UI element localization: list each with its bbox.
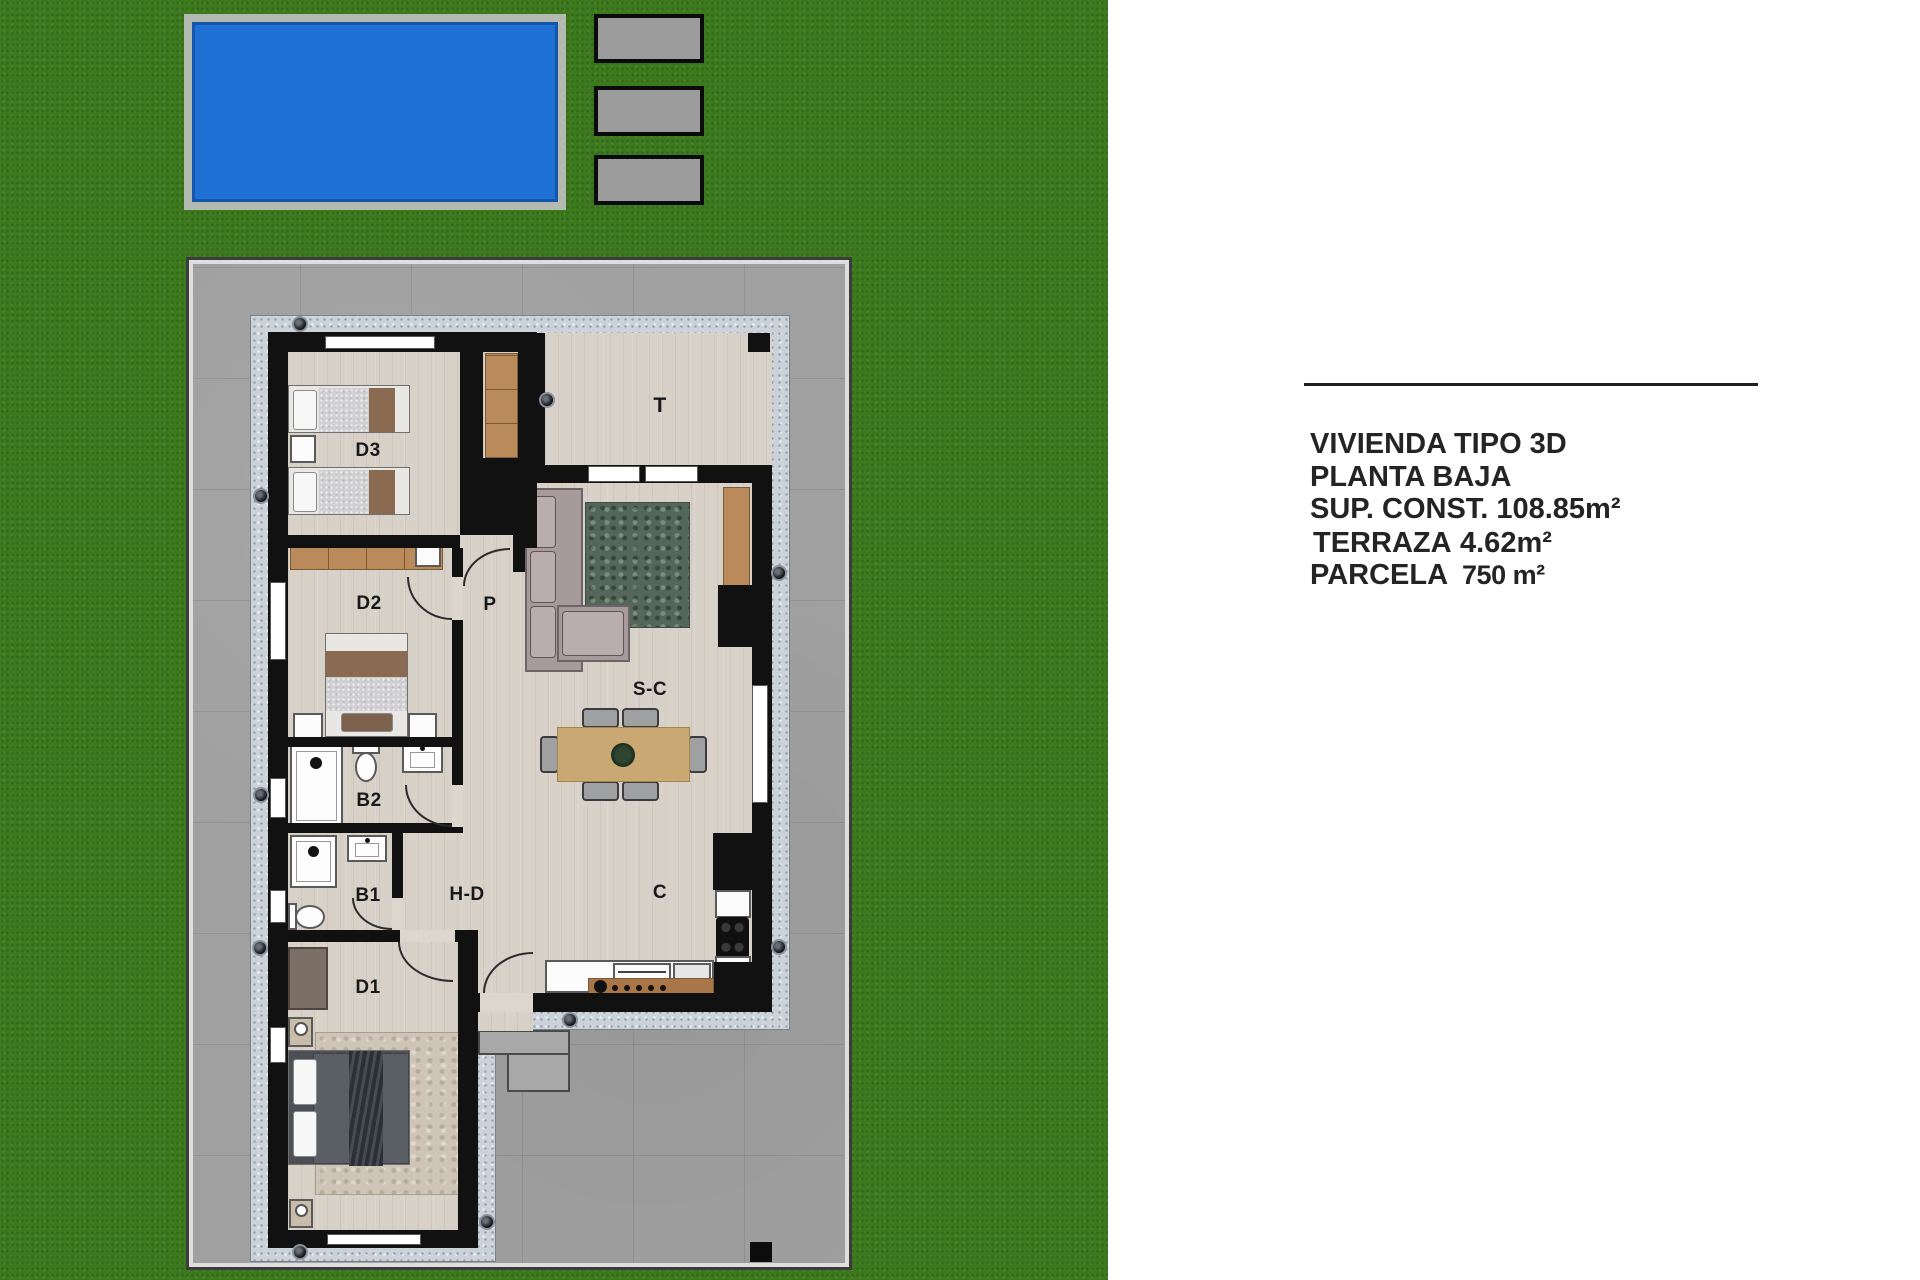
- pillow: [293, 1111, 317, 1157]
- exterior-light: [292, 316, 308, 332]
- room-label-b2: B2: [356, 790, 381, 812]
- wall-d3-right: [460, 352, 483, 535]
- kitchen-tall-cabinet: [713, 833, 752, 890]
- entry-step-1: [478, 1030, 570, 1055]
- panel-spec-sup-const: SUP. CONST.108.85m²: [1310, 493, 1621, 526]
- pillow: [293, 1059, 317, 1105]
- entry-step-2: [507, 1053, 570, 1092]
- faucet: [365, 838, 370, 843]
- bar-item: [660, 985, 666, 991]
- wall-d3-bottom: [288, 535, 460, 548]
- table-plant: [611, 743, 635, 767]
- dining-chair: [688, 736, 707, 773]
- bed-blanket: [326, 651, 407, 677]
- nightstand: [293, 713, 323, 740]
- floor-plan-canvas: D3 D2 P T S-C B2 B1 H-D C D1 VIVIENDA TI…: [0, 0, 1920, 1280]
- door-gap-d2: [452, 577, 463, 620]
- bed-blanket: [369, 470, 395, 514]
- shower-drain: [310, 757, 322, 769]
- window-d1-bottom: [327, 1234, 421, 1245]
- bar-item: [648, 985, 654, 991]
- spec-value: 4.62m²: [1460, 527, 1552, 559]
- dining-chair: [622, 708, 659, 728]
- exterior-light: [292, 1244, 308, 1260]
- panel-spec-terraza: TERRAZA4.62m²: [1313, 527, 1552, 560]
- room-label-d1: D1: [355, 977, 380, 999]
- bed-double-d2: [325, 633, 408, 737]
- shower-drain: [308, 846, 319, 857]
- lamp: [294, 1022, 308, 1036]
- wardrobe-d1: [288, 947, 328, 1010]
- panel-subtitle: PLANTA BAJA: [1310, 461, 1511, 494]
- shower-b2: [290, 745, 343, 827]
- lamp: [295, 1204, 308, 1217]
- bed-throw: [349, 1051, 383, 1166]
- exterior-light: [562, 1012, 578, 1028]
- storage-shed-3: [594, 155, 704, 205]
- nightstand: [288, 1017, 313, 1047]
- wall-sofa-back: [513, 487, 525, 572]
- mattress: [319, 388, 369, 432]
- dining-chair: [622, 781, 659, 801]
- exterior-light: [539, 392, 555, 408]
- exterior-light: [253, 787, 269, 803]
- bed-double-d1: [288, 1050, 410, 1165]
- room-label-t: T: [653, 394, 666, 418]
- wall-terrace-corner: [748, 333, 770, 352]
- swimming-pool: [184, 14, 566, 210]
- panel-title: VIVIENDA TIPO 3D: [1310, 428, 1567, 461]
- storage-shed-1: [594, 14, 704, 63]
- window-b2-left: [270, 778, 286, 818]
- hall-wardrobe: [485, 353, 518, 458]
- dining-chair: [582, 708, 619, 728]
- pillow: [293, 390, 317, 430]
- pillow: [293, 472, 317, 512]
- bed-single-1: [288, 385, 410, 433]
- wall-hall-block: [483, 458, 537, 535]
- nightstand: [290, 435, 316, 463]
- dining-chair: [582, 781, 619, 801]
- utility-marker: [750, 1242, 772, 1262]
- exterior-light: [771, 565, 787, 581]
- exterior-light: [479, 1214, 495, 1230]
- terrace-sliding-door-1: [588, 466, 640, 482]
- room-label-b1: B1: [355, 885, 380, 907]
- panel-spec-parcela: PARCELA750 m²: [1310, 559, 1545, 592]
- room-label-hd: H-D: [449, 884, 484, 906]
- sofa-cushion: [562, 611, 624, 656]
- terrace-sliding-door-2: [645, 466, 698, 482]
- mattress: [326, 677, 407, 711]
- room-label-p: P: [483, 594, 496, 616]
- window-b1-left: [270, 890, 286, 923]
- fridge: [715, 890, 751, 918]
- spec-value: 108.85m²: [1496, 493, 1620, 525]
- exterior-light: [252, 940, 268, 956]
- cooktop: [716, 917, 749, 959]
- door-gap-b1: [392, 898, 403, 930]
- toilet-bowl-b2: [355, 752, 377, 782]
- shower-b1: [290, 835, 337, 888]
- spec-value: 750 m²: [1462, 560, 1545, 590]
- window-d1-left: [270, 1027, 286, 1063]
- room-label-sc: S-C: [633, 679, 667, 701]
- exterior-light: [771, 939, 787, 955]
- spec-label: SUP. CONST.: [1310, 493, 1488, 526]
- sofa-cushion: [530, 551, 556, 603]
- window-d2-left: [270, 582, 286, 660]
- sofa-cushion: [530, 606, 556, 658]
- room-label-c: C: [653, 882, 667, 904]
- bar-item: [624, 985, 630, 991]
- exterior-light: [253, 488, 269, 504]
- nightstand: [408, 713, 437, 740]
- bar-item: [612, 985, 618, 991]
- sink-b2: [402, 743, 443, 773]
- door-gap-b2: [452, 785, 463, 827]
- toilet-bowl-b1: [295, 905, 325, 929]
- room-label-d2: D2: [356, 593, 381, 615]
- window-living-right: [752, 685, 768, 803]
- sideboard: [723, 487, 750, 587]
- spec-label: PARCELA: [1310, 559, 1448, 592]
- bed-blanket: [369, 388, 395, 432]
- basin: [410, 752, 435, 768]
- storage-shed-2: [594, 86, 704, 136]
- spec-label: TERRAZA: [1313, 527, 1460, 560]
- panel-rule: [1304, 383, 1758, 386]
- wall-d2-b2: [288, 737, 463, 747]
- window-d3-top: [325, 336, 435, 349]
- bar-item: [636, 985, 642, 991]
- door-gap-d1: [400, 930, 455, 942]
- nightstand: [289, 1199, 313, 1228]
- wall-d1-right: [458, 930, 478, 1248]
- mattress: [319, 470, 369, 514]
- pillow: [341, 713, 393, 732]
- room-label-d3: D3: [355, 440, 380, 462]
- bed-single-2: [288, 467, 410, 515]
- coffee-machine: [594, 980, 607, 993]
- basin: [355, 843, 379, 857]
- sink-b1: [347, 835, 387, 862]
- door-gap-entry: [480, 993, 533, 1012]
